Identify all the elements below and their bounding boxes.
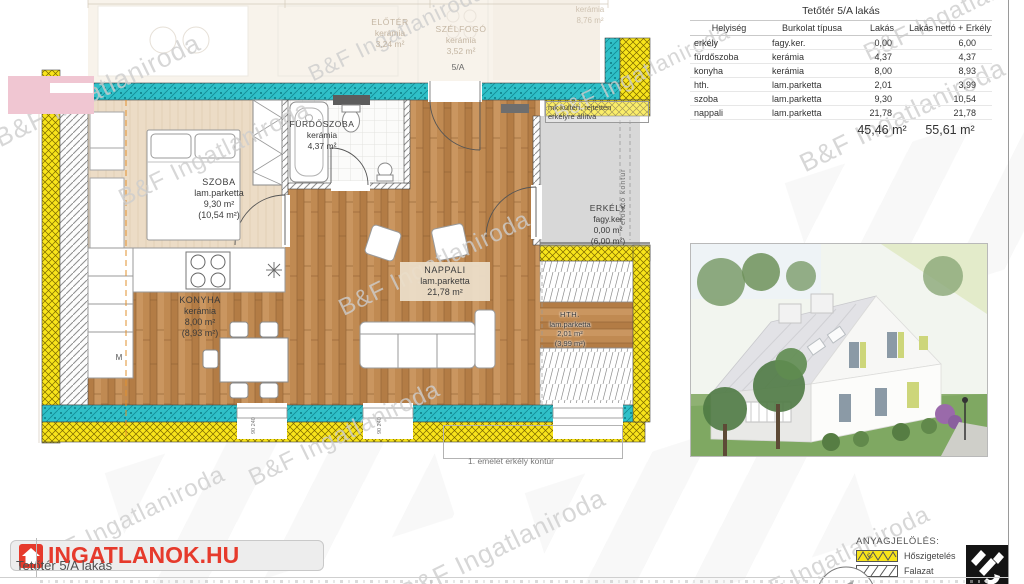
room-label-neighbor: kerámia 8,76 m²	[550, 4, 630, 26]
room-floor: lam.parketta	[400, 276, 490, 287]
washer	[333, 95, 370, 105]
room-floor: kerámia	[155, 306, 245, 317]
room-label-szelfogo: SZÉLFOGÓ kerámia 3,52 m²	[416, 24, 506, 57]
fixture-label-m: M	[112, 352, 126, 363]
room-area-gross: (8,93 m²)	[155, 328, 245, 339]
cell-gross: 3,99	[908, 80, 992, 90]
room-name: HTH.	[535, 310, 605, 320]
cell-surface: fagy.ker.	[768, 38, 856, 48]
room-label-erkely: ERKÉLY fagy.ker 0,00 m² (6,00 m²)	[572, 203, 644, 247]
room-area: 0,00 m²	[572, 225, 644, 236]
total-gross: 55,61 m²	[908, 123, 992, 137]
room-area: 8,76 m²	[550, 15, 630, 26]
cell-area: 9,30	[856, 94, 908, 104]
room-area: 21,78 m²	[400, 287, 490, 298]
plan-caption: Tetőtér 5/A lakás	[16, 558, 112, 573]
page: 1. emelet erkély kontúr SZOBA lam.parket…	[0, 0, 1024, 584]
partition-bath-right	[404, 100, 410, 183]
cell-gross: 8,93	[908, 66, 992, 76]
legend-label: Falazat	[904, 566, 934, 576]
cell-area: 4,37	[856, 52, 908, 62]
table-row: erkély fagy.ker. 0,00 6,00	[690, 36, 992, 50]
col-header-netto: Lakás nettó + Erkély	[908, 23, 992, 33]
dimension-label: 90 240	[377, 398, 383, 434]
legend-title: ANYAGJELÖLÉS:	[856, 536, 956, 547]
hth-slope-top	[540, 261, 633, 302]
room-label-nappali: NAPPALI lam.parketta 21,78 m²	[400, 262, 490, 301]
table-row: szoba lam.parketta 9,30 10,54	[690, 92, 992, 106]
cell-room: erkély	[690, 38, 768, 48]
snowflake-icon	[266, 262, 282, 278]
room-floor: lam.parketta	[174, 188, 264, 199]
room-area: 9,30 m²	[174, 199, 264, 210]
room-floor: kerámia	[550, 4, 630, 15]
room-floor: lam.parketta	[535, 320, 605, 330]
cell-area: 0,00	[856, 38, 908, 48]
col-header-lakas: Lakás	[856, 23, 908, 33]
table-row: hth. lam.parketta 2,01 3,99	[690, 78, 992, 92]
room-label-szoba: SZOBA lam.parketta 9,30 m² (10,54 m²)	[174, 177, 264, 221]
cell-surface: lam.parketta	[768, 94, 856, 104]
page-frame-line	[36, 538, 37, 577]
room-area: 2,01 m²	[535, 329, 605, 339]
room-floor: fagy.ker	[572, 214, 644, 225]
szoba-cabinets	[90, 112, 124, 248]
cell-room: nappali	[690, 108, 768, 118]
room-area: 3,52 m²	[416, 46, 506, 57]
room-name: NAPPALI	[400, 265, 490, 276]
wall-right-yellow	[633, 245, 650, 422]
floor-corridor	[410, 100, 540, 188]
table-header-row: Helyiség Burkolat típusa Lakás Lakás net…	[690, 21, 992, 36]
table-row: konyha kerámia 8,00 8,93	[690, 64, 992, 78]
cell-room: konyha	[690, 66, 768, 76]
cell-area: 2,01	[856, 80, 908, 90]
col-header-burkolat: Burkolat típusa	[768, 23, 856, 33]
room-area: 4,37 m²	[277, 141, 367, 152]
room-name: SZOBA	[174, 177, 264, 188]
table-row: fürdőszoba kerámia 4,37 4,37	[690, 50, 992, 64]
room-label-hth: HTH. lam.parketta 2,01 m² (3,99 m²)	[535, 310, 605, 348]
title-block-microtext	[40, 580, 990, 583]
dimension-label: 90 240	[251, 398, 257, 434]
doormat	[501, 104, 529, 113]
bf-logo	[966, 545, 1008, 584]
cell-gross: 4,37	[908, 52, 992, 62]
hth-slope-bottom	[540, 348, 633, 405]
door-label-5a: 5/A	[443, 62, 473, 73]
cell-room: fürdőszoba	[690, 52, 768, 62]
room-name: FÜRDŐSZOBA	[277, 119, 367, 130]
first-floor-balcony-contour	[443, 425, 623, 459]
page-frame-line	[0, 577, 1009, 578]
room-area-gross: (6,00 m²)	[572, 236, 644, 247]
cell-area: 21,78	[856, 108, 908, 118]
page-frame-line	[1008, 0, 1009, 584]
room-floor: kerámia	[277, 130, 367, 141]
cell-surface: lam.parketta	[768, 80, 856, 90]
adjacent-unit-faded	[88, 0, 600, 83]
dining-table	[220, 338, 288, 382]
contour-label: 1. emelet erkély kontúr	[468, 456, 554, 466]
adjacent-balcony-block	[8, 76, 94, 114]
cell-surface: kerámia	[768, 52, 856, 62]
cell-surface: lam.parketta	[768, 108, 856, 118]
room-area: 8,00 m²	[155, 317, 245, 328]
room-area-gross: (3,99 m²)	[535, 339, 605, 349]
room-label-furdoszoba: FÜRDŐSZOBA kerámia 4,37 m²	[277, 119, 367, 152]
room-name: SZÉLFOGÓ	[416, 24, 506, 35]
room-area-gross: (10,54 m²)	[174, 210, 264, 221]
floorplan-drawing	[38, 0, 663, 475]
cell-gross: 6,00	[908, 38, 992, 48]
table-row: nappali lam.parketta 21,78 21,78	[690, 106, 992, 120]
klima-note: mk kültéri, rejtetten erkélyre állítva	[545, 101, 649, 123]
cell-gross: 10,54	[908, 94, 992, 104]
table-title: Tetőtér 5/A lakás	[690, 3, 992, 21]
cell-room: hth.	[690, 80, 768, 90]
room-name: KONYHA	[155, 295, 245, 306]
cell-room: szoba	[690, 94, 768, 104]
room-name: ERKÉLY	[572, 203, 644, 214]
cell-gross: 21,78	[908, 108, 992, 118]
eloteto-kontur-label: előtető kontúr	[620, 140, 627, 225]
cell-surface: kerámia	[768, 66, 856, 76]
room-label-konyha: KONYHA kerámia 8,00 m² (8,93 m²)	[155, 295, 245, 339]
total-area: 45,46 m²	[856, 123, 908, 137]
area-table: Tetőtér 5/A lakás Helyiség Burkolat típu…	[690, 3, 992, 137]
legend-label: Hőszigetelés	[904, 551, 956, 561]
room-floor: kerámia	[416, 35, 506, 46]
wall-left-yellow	[42, 70, 60, 443]
wall-left-falazat	[60, 83, 88, 405]
building-render-image	[690, 243, 988, 457]
col-header-helyiseg: Helyiség	[690, 23, 768, 33]
table-body: erkély fagy.ker. 0,00 6,00 fürdőszoba ke…	[690, 36, 992, 120]
cell-area: 8,00	[856, 66, 908, 76]
table-totals-row: 45,46 m² 55,61 m²	[690, 120, 992, 137]
